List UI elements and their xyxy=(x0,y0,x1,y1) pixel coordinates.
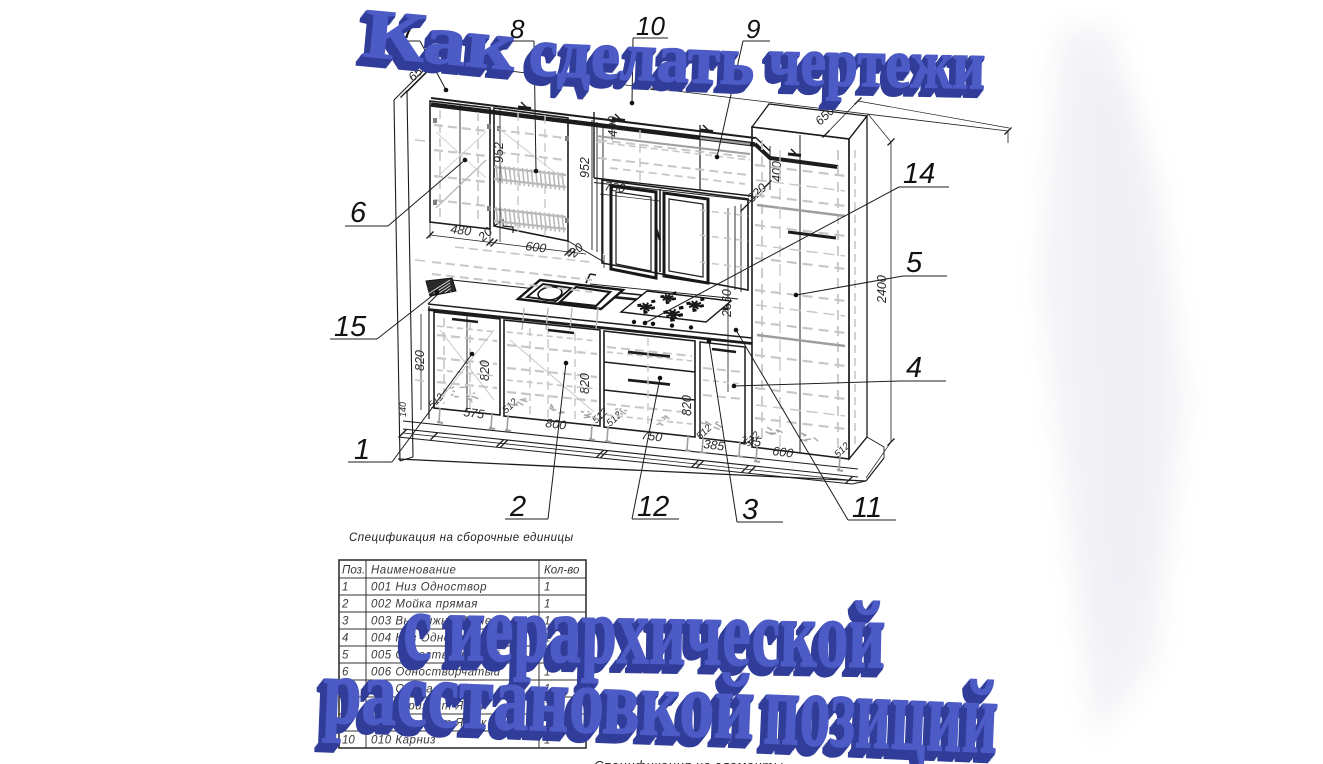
svg-text:385: 385 xyxy=(703,437,725,453)
svg-text:15: 15 xyxy=(334,311,367,343)
svg-text:952: 952 xyxy=(492,142,506,163)
svg-text:820: 820 xyxy=(478,360,492,381)
svg-text:600: 600 xyxy=(772,444,794,460)
svg-text:20: 20 xyxy=(566,240,586,260)
svg-text:5: 5 xyxy=(906,247,923,279)
svg-text:2: 2 xyxy=(509,491,526,523)
svg-text:575: 575 xyxy=(463,405,485,421)
svg-text:позиций: позиций xyxy=(762,649,1001,764)
svg-text:3: 3 xyxy=(342,616,349,628)
svg-text:1: 1 xyxy=(354,434,370,466)
svg-text:400: 400 xyxy=(606,116,620,137)
svg-text:2: 2 xyxy=(341,599,349,611)
svg-text:Спецификация на сборочные един: Спецификация на сборочные единицы xyxy=(349,532,574,544)
svg-text:14: 14 xyxy=(903,158,935,190)
svg-text:140: 140 xyxy=(398,402,408,417)
svg-text:чертежи: чертежи xyxy=(768,23,987,105)
svg-text:12: 12 xyxy=(637,491,669,523)
svg-text:820: 820 xyxy=(578,373,592,394)
svg-text:600: 600 xyxy=(525,239,547,255)
svg-text:Как: Как xyxy=(361,0,520,86)
svg-text:952: 952 xyxy=(578,157,592,178)
svg-text:480: 480 xyxy=(450,222,472,238)
svg-text:800: 800 xyxy=(545,416,567,432)
svg-text:750: 750 xyxy=(641,428,663,444)
svg-text:6: 6 xyxy=(350,197,367,229)
svg-text:4: 4 xyxy=(906,352,922,384)
svg-text:3: 3 xyxy=(742,494,758,526)
svg-text:Поз.: Поз. xyxy=(342,565,365,577)
svg-text:820: 820 xyxy=(413,350,427,371)
svg-text:расстановкой: расстановкой xyxy=(321,639,757,760)
svg-text:1: 1 xyxy=(342,582,348,594)
svg-text:сделать: сделать xyxy=(527,14,756,101)
svg-text:11: 11 xyxy=(852,492,882,524)
svg-text:820: 820 xyxy=(680,395,694,416)
svg-text:400: 400 xyxy=(770,161,784,182)
